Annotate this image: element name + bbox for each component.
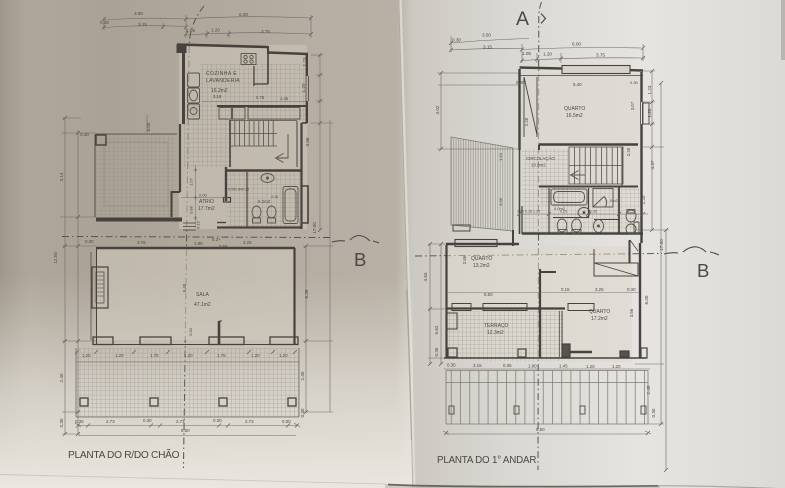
svg-text:8.00: 8.00 <box>146 122 151 131</box>
svg-text:3.15: 3.15 <box>473 363 482 368</box>
svg-text:3.25: 3.25 <box>595 287 604 292</box>
svg-text:2.40: 2.40 <box>59 373 64 382</box>
svg-text:1.80: 1.80 <box>528 364 537 369</box>
svg-text:0.30: 0.30 <box>85 239 94 244</box>
svg-text:12.3m2: 12.3m2 <box>487 330 504 336</box>
svg-text:0.30: 0.30 <box>80 132 89 137</box>
svg-text:3.76: 3.76 <box>137 240 146 245</box>
svg-text:5.40: 5.40 <box>573 82 582 87</box>
svg-text:17.7m2: 17.7m2 <box>198 206 215 212</box>
svg-text:2.86: 2.86 <box>462 255 467 264</box>
svg-text:0.55: 0.55 <box>219 244 228 249</box>
svg-text:3.25: 3.25 <box>243 240 252 245</box>
svg-text:4.02: 4.02 <box>435 105 440 114</box>
svg-text:1.20: 1.20 <box>251 353 260 358</box>
svg-text:17.00: 17.00 <box>659 239 664 251</box>
svg-text:17.00: 17.00 <box>312 222 317 234</box>
svg-text:0.30: 0.30 <box>282 419 291 424</box>
svg-text:0.30: 0.30 <box>75 419 84 424</box>
svg-text:2.40: 2.40 <box>300 371 305 380</box>
svg-text:0.30: 0.30 <box>630 80 639 85</box>
svg-text:9.50: 9.50 <box>536 427 545 432</box>
svg-text:QUARTO: QUARTO <box>564 106 585 112</box>
svg-text:2.00: 2.00 <box>199 193 208 198</box>
svg-text:1.20: 1.20 <box>115 353 124 358</box>
svg-text:0.550.840.15: 0.550.840.15 <box>228 188 249 192</box>
svg-text:0.30: 0.30 <box>452 38 461 43</box>
svg-text:0.30: 0.30 <box>627 287 636 292</box>
svg-text:4.37: 4.37 <box>650 160 655 169</box>
svg-text:1.20: 1.20 <box>82 353 91 358</box>
svg-text:0.30: 0.30 <box>188 327 193 336</box>
svg-text:3.56: 3.56 <box>629 308 634 317</box>
svg-text:3.75: 3.75 <box>261 29 270 34</box>
svg-text:16.5m2: 16.5m2 <box>566 113 583 119</box>
svg-text:0.35: 0.35 <box>503 363 512 368</box>
svg-text:B: B <box>697 260 709 281</box>
svg-text:0.2+: 0.2+ <box>212 237 221 242</box>
svg-text:1.20: 1.20 <box>647 108 652 117</box>
svg-text:0.30: 0.30 <box>143 418 152 423</box>
svg-text:PLANTA DO R/DO CHÃO: PLANTA DO R/DO CHÃO <box>68 448 180 461</box>
svg-text:1.05: 1.05 <box>522 51 531 56</box>
svg-text:0.30: 0.30 <box>651 408 656 417</box>
svg-text:0.30: 0.30 <box>516 80 525 85</box>
svg-text:6.00: 6.00 <box>572 42 581 47</box>
svg-text:TERRAÇO: TERRAÇO <box>484 323 509 329</box>
svg-text:B: B <box>354 249 366 270</box>
svg-text:1.20: 1.20 <box>612 364 621 369</box>
svg-text:COZINHA E: COZINHA E <box>206 71 237 77</box>
svg-text:6.39: 6.39 <box>304 289 309 298</box>
svg-text:1.20: 1.20 <box>543 52 552 57</box>
svg-text:PLANTA DO 1° ANDAR: PLANTA DO 1° ANDAR <box>437 455 536 466</box>
svg-text:4.0m2: 4.0m2 <box>554 206 566 211</box>
svg-text:3.18: 3.18 <box>213 94 222 99</box>
svg-text:2.40: 2.40 <box>646 385 651 394</box>
svg-text:5.50: 5.50 <box>484 292 493 297</box>
svg-text:2.16: 2.16 <box>271 195 278 199</box>
svg-text:CIRCULAÇÃO: CIRCULAÇÃO <box>526 156 555 161</box>
svg-text:0.35: 0.35 <box>434 347 439 356</box>
svg-text:17.2m2: 17.2m2 <box>591 316 608 322</box>
svg-text:3.07: 3.07 <box>630 101 635 110</box>
svg-text:1.75: 1.75 <box>150 353 159 358</box>
svg-text:1.35: 1.35 <box>590 210 597 214</box>
svg-text:1.20: 1.20 <box>586 364 595 369</box>
svg-text:0.15: 0.15 <box>561 287 570 292</box>
svg-text:1.75: 1.75 <box>217 353 226 358</box>
svg-text:2.20: 2.20 <box>626 147 631 156</box>
svg-text:1.20: 1.20 <box>498 152 503 161</box>
svg-text:3.08: 3.08 <box>498 197 503 206</box>
svg-text:1.20: 1.20 <box>301 83 306 92</box>
svg-text:0.88: 0.88 <box>189 205 194 214</box>
svg-text:LAVANDERIA: LAVANDERIA <box>206 78 240 84</box>
svg-text:13.2m2: 13.2m2 <box>473 263 490 269</box>
svg-text:3.75: 3.75 <box>596 53 605 58</box>
svg-text:6.00: 6.00 <box>239 12 248 17</box>
svg-text:1.20: 1.20 <box>211 28 220 33</box>
svg-text:8.50: 8.50 <box>181 428 190 433</box>
svg-text:47.1m2: 47.1m2 <box>194 302 211 308</box>
svg-text:0.30: 0.30 <box>59 418 64 427</box>
svg-text:SALA: SALA <box>196 292 209 298</box>
svg-text:1.20: 1.20 <box>279 353 288 358</box>
svg-text:2.73: 2.73 <box>245 419 254 424</box>
svg-text:A: A <box>516 8 529 30</box>
svg-text:6.2m2: 6.2m2 <box>258 199 271 204</box>
svg-text:2.73: 2.73 <box>176 419 185 424</box>
svg-text:1.90: 1.90 <box>194 241 203 246</box>
svg-text:0.30: 0.30 <box>213 418 222 423</box>
svg-text:1.20: 1.20 <box>184 353 193 358</box>
svg-text:0.30: 0.30 <box>100 20 109 25</box>
svg-text:0m2: 0m2 <box>610 198 619 203</box>
svg-text:5.62: 5.62 <box>434 325 439 334</box>
svg-text:2.73: 2.73 <box>106 419 115 424</box>
svg-text:3.15: 3.15 <box>483 45 492 50</box>
svg-text:0.30: 0.30 <box>300 408 305 417</box>
svg-text:6.15: 6.15 <box>196 220 201 229</box>
svg-text:1.45: 1.45 <box>559 364 568 369</box>
svg-text:6.00: 6.00 <box>644 295 649 304</box>
svg-text:3.50: 3.50 <box>482 33 491 38</box>
svg-text:3.15: 3.15 <box>138 22 147 27</box>
svg-text:1.23: 1.23 <box>647 85 652 94</box>
svg-text:ATRIO: ATRIO <box>199 199 214 205</box>
svg-text:2.20: 2.20 <box>524 117 529 126</box>
svg-text:10.5m2: 10.5m2 <box>531 163 546 168</box>
svg-text:QUARTO: QUARTO <box>471 256 492 262</box>
svg-text:1.45: 1.45 <box>280 96 289 101</box>
svg-text:1.57: 1.57 <box>189 177 194 186</box>
svg-text:12.50: 12.50 <box>53 252 58 264</box>
svg-text:QUARTO: QUARTO <box>589 309 610 315</box>
svg-text:3.80: 3.80 <box>134 11 143 16</box>
svg-text:4.63: 4.63 <box>423 272 428 281</box>
svg-text:0.75: 0.75 <box>256 95 265 100</box>
svg-text:3.14: 3.14 <box>59 172 64 181</box>
svg-text:0.35: 0.35 <box>447 363 456 368</box>
svg-text:5.40: 5.40 <box>182 283 187 292</box>
svg-text:3.98: 3.98 <box>305 137 310 146</box>
